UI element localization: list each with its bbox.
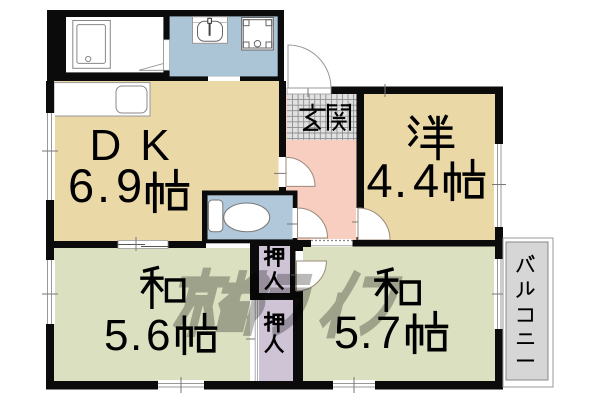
svg-text:.: . [360, 307, 373, 358]
svg-text:4: 4 [413, 154, 439, 207]
svg-text:9: 9 [116, 159, 142, 212]
svg-text:6: 6 [68, 159, 94, 212]
svg-text:.: . [97, 159, 110, 212]
svg-text:5: 5 [334, 307, 359, 358]
svg-text:.: . [394, 154, 407, 207]
svg-text:6: 6 [146, 311, 170, 360]
svg-text:7: 7 [376, 307, 401, 358]
svg-text:.: . [130, 311, 142, 360]
svg-text:4: 4 [367, 154, 393, 207]
svg-text:5: 5 [104, 311, 128, 360]
